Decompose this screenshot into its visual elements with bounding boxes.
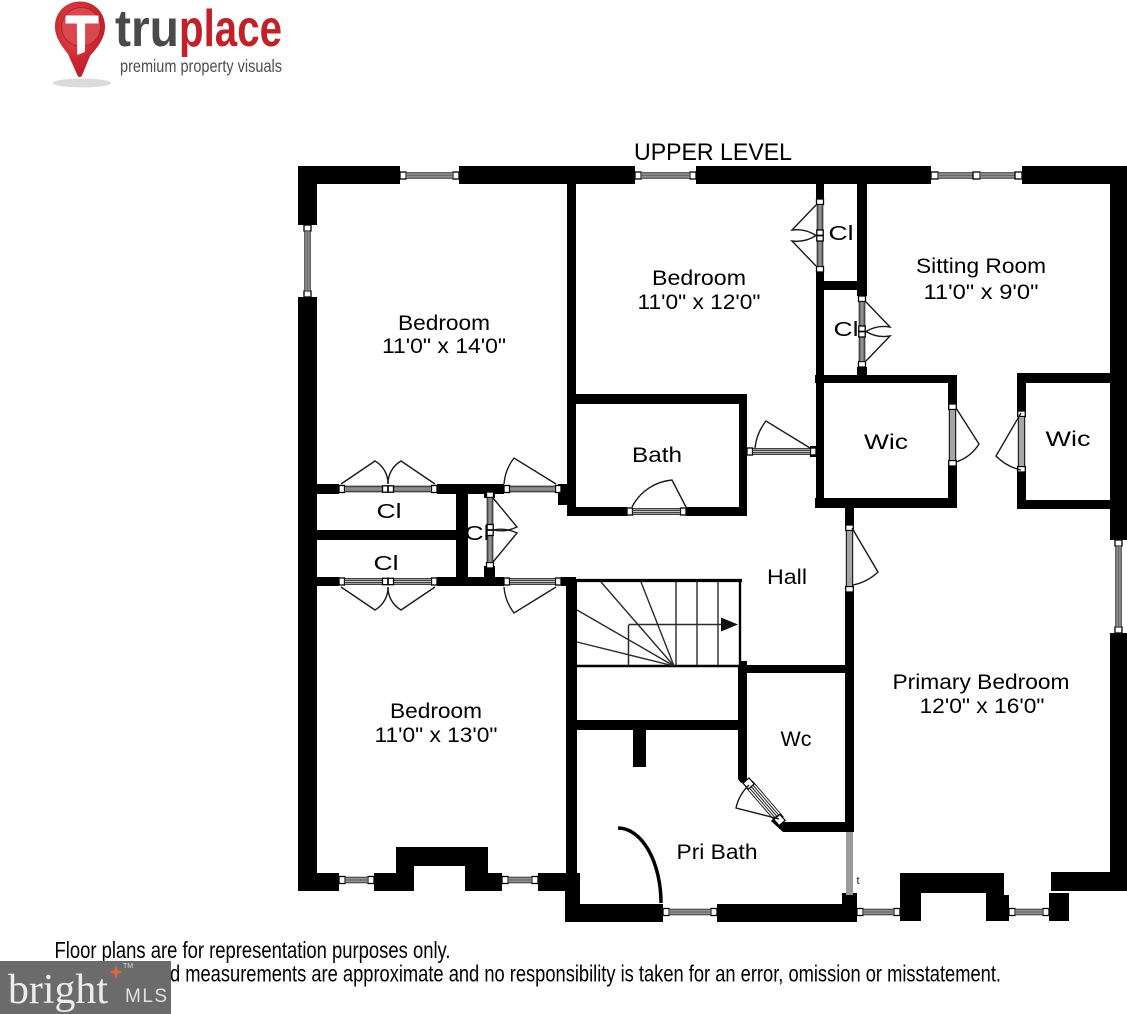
svg-text:t: t xyxy=(856,875,859,887)
svg-text:TM: TM xyxy=(123,963,133,970)
svg-text:place: place xyxy=(179,0,282,58)
svg-text:Bedroom: Bedroom xyxy=(652,267,746,290)
svg-text:premium property visuals: premium property visuals xyxy=(120,56,282,76)
svg-text:Wic: Wic xyxy=(864,431,908,454)
svg-text:Sitting Room: Sitting Room xyxy=(916,255,1046,278)
svg-text:Floor plans are for representa: Floor plans are for representation purpo… xyxy=(55,937,451,963)
svg-text:11'0" x 13'0": 11'0" x 13'0" xyxy=(375,724,498,747)
svg-text:11'0" x 12'0": 11'0" x 12'0" xyxy=(638,291,761,314)
svg-text:MLS: MLS xyxy=(125,986,169,1007)
svg-text:11'0" x 9'0": 11'0" x 9'0" xyxy=(924,281,1039,304)
svg-text:d measurements are approximate: d measurements are approximate and no re… xyxy=(170,961,1001,987)
svg-text:Bedroom: Bedroom xyxy=(398,312,490,335)
svg-text:Bath: Bath xyxy=(632,444,682,467)
svg-text:UPPER LEVEL: UPPER LEVEL xyxy=(634,139,792,166)
svg-text:Hall: Hall xyxy=(767,566,807,589)
svg-text:Cl: Cl xyxy=(829,223,854,245)
svg-text:Bedroom: Bedroom xyxy=(390,700,482,723)
svg-text:Cl: Cl xyxy=(377,501,402,523)
svg-text:Cl: Cl xyxy=(465,523,490,545)
svg-text:tru: tru xyxy=(115,0,179,58)
svg-text:Wc: Wc xyxy=(781,728,812,751)
svg-text:Pri Bath: Pri Bath xyxy=(677,841,758,864)
svg-text:Cl: Cl xyxy=(374,553,399,575)
svg-text:11'0" x 14'0": 11'0" x 14'0" xyxy=(382,335,506,358)
svg-text:bright: bright xyxy=(8,967,108,1013)
svg-text:Wic: Wic xyxy=(1046,428,1091,451)
svg-text:12'0" x 16'0": 12'0" x 16'0" xyxy=(920,695,1045,718)
svg-text:Primary Bedroom: Primary Bedroom xyxy=(893,671,1070,694)
svg-text:Cl: Cl xyxy=(834,319,859,341)
